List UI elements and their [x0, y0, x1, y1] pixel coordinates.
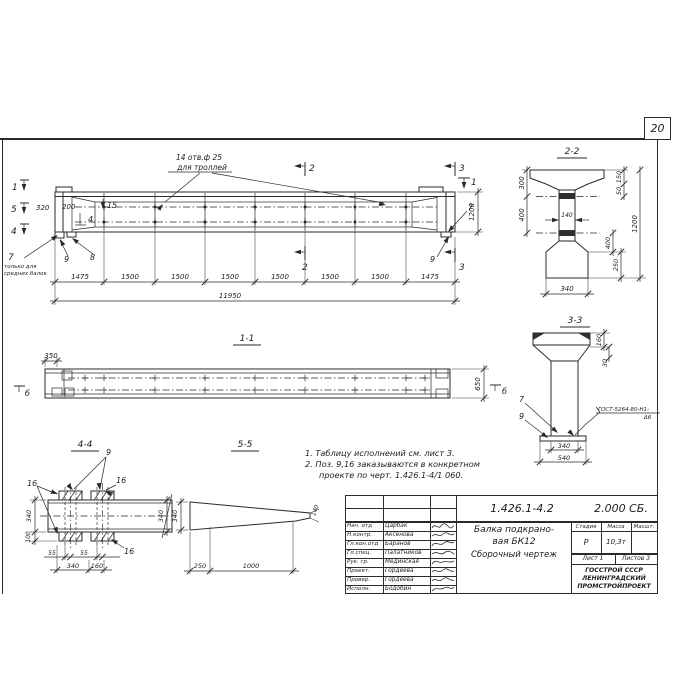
mark-b-left: б [25, 389, 30, 398]
sheets-label: Листов 3 [616, 554, 656, 563]
dim-1200-elevation: 1200 [468, 203, 476, 221]
sig-role: Гл.кон.отд [347, 541, 382, 547]
note-line-2: 2. Поз. 9,16 заказываются в конкретном [305, 459, 530, 470]
sig-role: Н.контр. [347, 532, 382, 538]
signature-squiggle [431, 576, 455, 584]
signature-row: Провер. Гордеева [346, 576, 456, 585]
dim-seg-6: 1500 [321, 273, 339, 281]
org-line3: ПРОМСТРОЙПРОЕКТ [572, 582, 656, 590]
title-block-line [346, 508, 456, 509]
view-1-1-title: 1-1 [240, 334, 255, 344]
sig-role: Исполн. [347, 586, 382, 592]
header-mass: Масса [602, 522, 630, 531]
dim-50: 50 [615, 187, 623, 195]
header-scale: Масшт. [632, 522, 656, 531]
dim-250: 250 [612, 259, 620, 271]
note-middle-beams-2: средних балок [4, 271, 48, 277]
note-line-1: 1. Таблицу исполнений см. лист 3. [305, 448, 530, 459]
dim-seg-5: 1500 [271, 273, 289, 281]
pos-8: 8 [90, 253, 95, 262]
signature-row: Гл.спец. Палатников [346, 549, 456, 558]
sig-name: Палатников [385, 550, 429, 556]
dim-340-sec33: 340 [558, 442, 570, 450]
view-1-1 [14, 345, 501, 402]
dim-250-view55: 250 [194, 562, 206, 570]
dim-seg-4: 1500 [221, 273, 239, 281]
dim-540: 540 [558, 454, 570, 462]
weld-spec-line1: ГОСТ-5264-80-Н1- [598, 407, 649, 413]
dim-30: 30 [601, 359, 609, 367]
dim-340-right-sec44: 340 [157, 510, 165, 522]
title-block-line [456, 496, 457, 593]
note-line-3: проекте по черт. 1.426.1-4/1 060. [305, 470, 530, 481]
org-line1: ГОССТРОЙ СССР [572, 566, 656, 574]
signature-squiggle [431, 522, 455, 530]
title-block-line [571, 531, 657, 532]
elevation-callout-line1: 14 отв.ф 25 [176, 153, 222, 162]
drawing-name-line1: Балка подкрано- [458, 524, 570, 536]
sig-role: Рук. гр. [347, 559, 382, 565]
dim-140-view55: 140 [310, 504, 321, 517]
notes-block: 1. Таблицу исполнений см. лист 3. 2. Поз… [305, 448, 530, 481]
sheet-label: Лист 1 [572, 554, 614, 563]
elevation-callout-line2: для троллей [176, 163, 227, 172]
dim-340-left-sec44: 340 [25, 510, 33, 522]
signature-row: Рук. гр. Мединская [346, 558, 456, 567]
signature-squiggle [431, 585, 455, 593]
signature-squiggle [431, 540, 455, 548]
note-middle-beams-1: только для [4, 264, 37, 270]
dim-400b: 400 [604, 237, 612, 249]
sig-name: Гордеева [385, 568, 429, 574]
signature-row: Исполн. Бодобин [346, 585, 456, 594]
signature-squiggle [431, 567, 455, 575]
drawing-canvas: 14 отв.ф 25 для троллей 1 5 4 320 200 15… [0, 0, 700, 700]
title-block: 1.426.1-4.2 2.000 СБ. Нач. отд Царбак Н.… [345, 495, 658, 594]
pos-9-sec33: 9 [519, 412, 524, 421]
sig-name: Царбак [385, 523, 429, 529]
dim-650: 650 [474, 377, 482, 391]
sig-name: Бодобин [385, 586, 429, 592]
dim-total: 11950 [219, 292, 242, 300]
dim-55-a: 55 [48, 550, 56, 557]
weld-spec-line2: Δ6 [643, 415, 652, 421]
cut-mark-1-right: 1 [471, 178, 477, 188]
drawing-name-line2: вая БК12 [458, 536, 570, 548]
pos-9-left: 9 [64, 255, 69, 264]
mark-b-right: б [502, 387, 507, 396]
dim-seg-7: 1500 [371, 273, 389, 281]
title-block-line [571, 564, 657, 565]
dim-1000: 1000 [243, 562, 260, 570]
section-3-3-title: 3-3 [568, 316, 583, 326]
signature-row: Н.контр. Аксенова [346, 531, 456, 540]
cut-mark-4-left: 4 [11, 227, 17, 237]
dim-400: 400 [518, 208, 526, 222]
pos-16-c: 16 [124, 547, 134, 556]
dim-320: 320 [36, 204, 50, 212]
signature-squiggle [431, 558, 455, 566]
drawing-sheet: 20 [0, 0, 700, 700]
section-4-4-title: 4-4 [78, 440, 93, 450]
pos-16-b: 16 [116, 476, 126, 485]
value-stage: Р [572, 533, 600, 551]
signature-row: Гл.кон.отд Баранов [346, 540, 456, 549]
pos-7-left: 7 [8, 253, 14, 263]
section-2-2-title: 2-2 [565, 147, 580, 157]
header-stage: Стадия [572, 522, 600, 531]
sig-role: Провер. [347, 577, 382, 583]
doc-code: 2.000 СБ. [586, 498, 656, 519]
dim-160-sec44: 160 [91, 562, 103, 570]
dim-100: 100 [25, 531, 32, 543]
section-3-3 [525, 327, 660, 465]
pos-9-sec44: 9 [106, 448, 111, 457]
dim-seg-3: 1500 [171, 273, 189, 281]
pos-15: 15 [107, 201, 117, 210]
view-5-5-title: 5-5 [238, 440, 253, 450]
dim-seg-2: 1500 [121, 273, 139, 281]
sig-name: Гордеева [385, 577, 429, 583]
dim-340-view55: 340 [171, 510, 179, 522]
cut-mark-5-left: 5 [11, 205, 17, 215]
section-2-2 [522, 158, 646, 297]
cut-mark-2-top: 2 [309, 164, 315, 174]
pos-9-right: 9 [430, 255, 435, 264]
sig-role: Проект. [347, 568, 382, 574]
cut-mark-2-bottom: 2 [302, 263, 308, 273]
signature-squiggle [431, 549, 455, 557]
dim-1200-sec22: 1200 [631, 215, 639, 233]
dim-350: 350 [44, 352, 58, 360]
signature-squiggle [431, 531, 455, 539]
dim-seg-8: 1475 [421, 273, 439, 281]
dim-160: 160 [595, 334, 603, 346]
signature-row: Проект. Гордеева [346, 567, 456, 576]
drawing-subtitle: Сборочный чертеж [458, 549, 570, 561]
elevation-view [20, 162, 483, 305]
pos-16-a: 16 [27, 479, 37, 488]
dim-150: 150 [615, 171, 623, 183]
sig-role: Нач. отд [347, 523, 382, 529]
pos-4: 4 [88, 215, 93, 224]
sig-name: Мединская [385, 559, 429, 565]
value-mass: 10,3т [602, 533, 630, 551]
dim-55-b: 55 [80, 550, 88, 557]
sig-role: Гл.спец. [347, 550, 382, 556]
doc-number: 1.426.1-4.2 [458, 498, 586, 519]
dim-200: 200 [62, 203, 76, 211]
cut-mark-1-left: 1 [12, 183, 18, 193]
dim-300: 300 [518, 176, 526, 190]
dim-340-bottom: 340 [67, 562, 79, 570]
sig-name: Баранов [385, 541, 429, 547]
cut-mark-3-top: 3 [459, 164, 465, 174]
org-line2: ЛЕНИНГРАДСКИЙ [572, 574, 656, 582]
dim-seg-1: 1475 [71, 273, 89, 281]
dim-340-sec22: 340 [560, 285, 574, 293]
sig-name: Аксенова [385, 532, 429, 538]
signature-row: Нач. отд Царбак [346, 522, 456, 531]
dim-140: 140 [561, 212, 573, 219]
cut-mark-3-bottom: 3 [459, 263, 465, 273]
view-5-5 [176, 451, 319, 574]
pos-7-sec33: 7 [519, 395, 525, 404]
